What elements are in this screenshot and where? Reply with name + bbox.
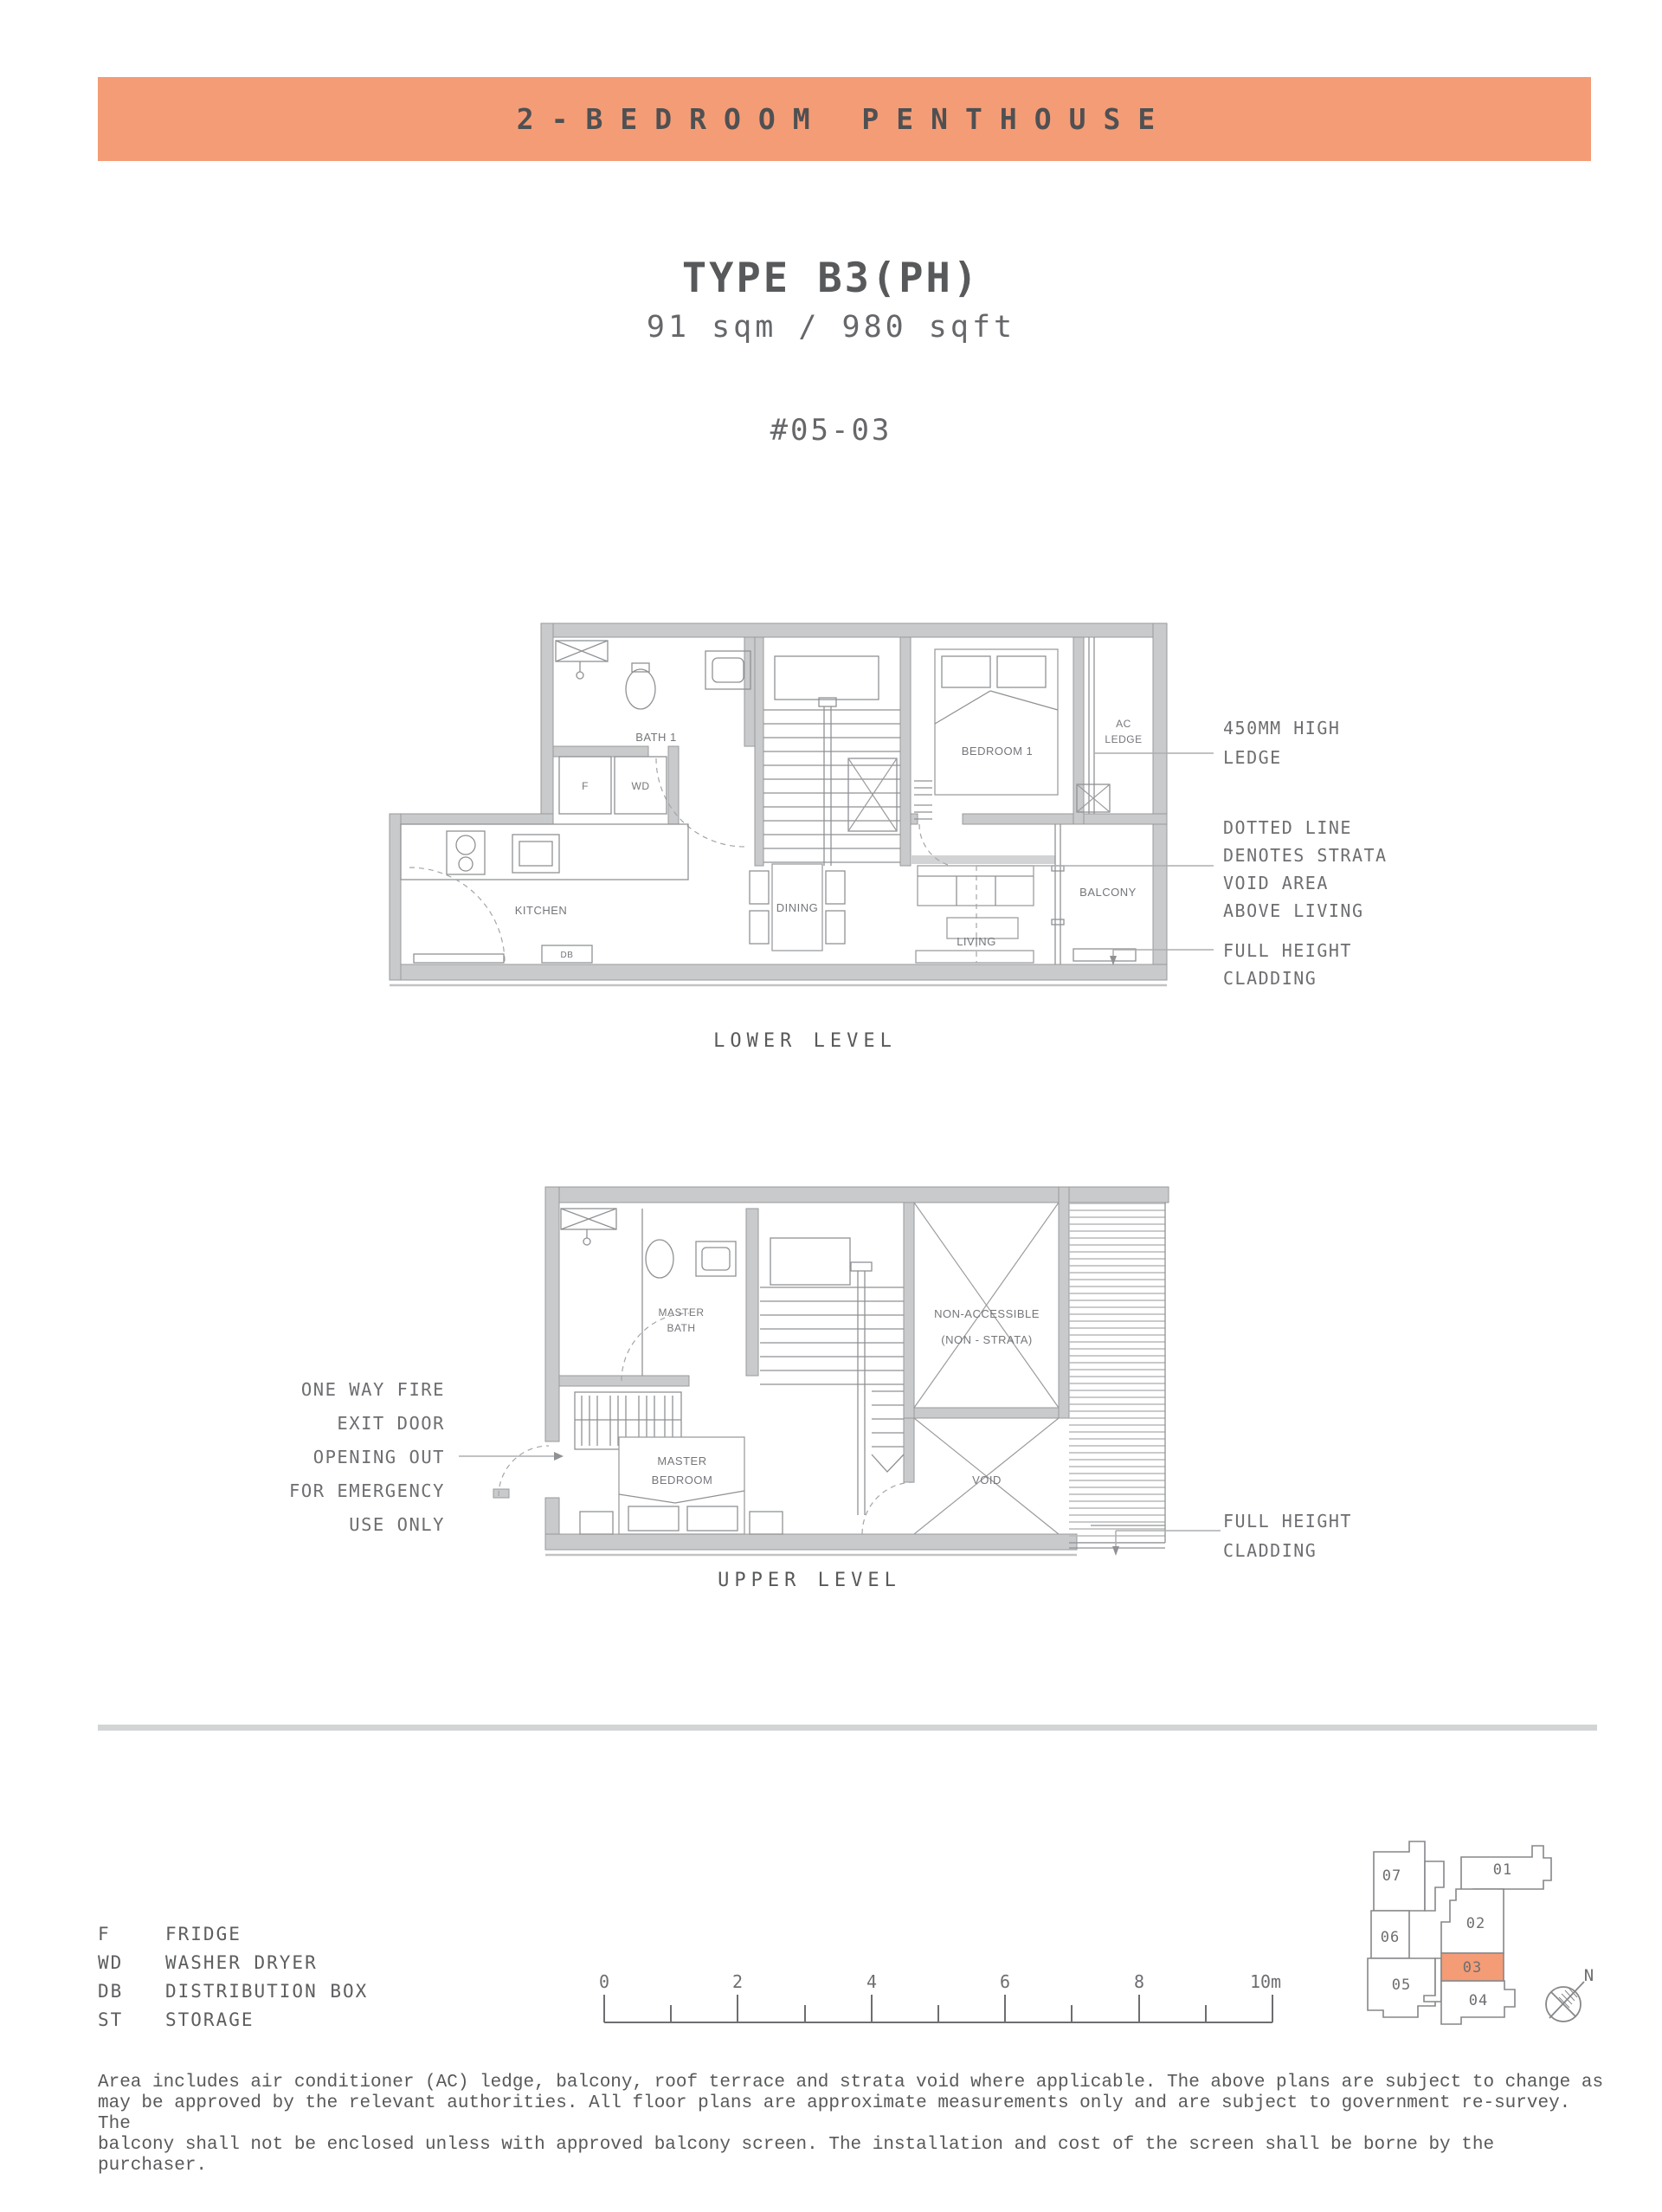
unit-area-subtitle: 91 sqm / 980 sqft (0, 307, 1662, 347)
key-plan-unit-01: 01 (1493, 1861, 1512, 1879)
scale-label-2: 2 (732, 1971, 743, 1992)
lower-living: LIVING (916, 866, 1034, 963)
annotation-cladding-lower-line1: FULL HEIGHT (1223, 937, 1352, 964)
annotation-strata-line2: DENOTES STRATA (1223, 842, 1388, 869)
key-plan-unit-03: 03 (1463, 1959, 1482, 1977)
annotation-fire-exit-line5: USE ONLY (173, 1508, 445, 1542)
legend: FFRIDGE WDWASHER DRYER DBDISTRIBUTION BO… (98, 1920, 368, 2035)
upper-master-bedroom: MASTER BEDROOM (580, 1437, 783, 1534)
floor-plan-page: 2-BEDROOM PENTHOUSE TYPE B3(PH) 91 sqm /… (0, 0, 1662, 2212)
room-label-balcony: BALCONY (1079, 886, 1137, 899)
room-label-void: VOID (972, 1474, 1002, 1486)
section-divider (98, 1725, 1597, 1731)
key-plan-units: 07 01 02 03 06 05 04 (1368, 1841, 1551, 2024)
annotation-cladding-upper-line1: FULL HEIGHT (1223, 1506, 1352, 1536)
annotation-cladding-upper: FULL HEIGHT CLADDING (1223, 1506, 1352, 1565)
room-label-non-accessible-2: (NON - STRATA) (941, 1333, 1032, 1346)
room-label-bath1: BATH 1 (635, 731, 677, 744)
room-label-fridge: F (582, 780, 589, 792)
key-plan-unit-07: 07 (1382, 1867, 1401, 1885)
room-label-dining: DINING (776, 901, 819, 914)
room-label-kitchen: KITCHEN (515, 904, 568, 917)
north-arrow-icon: N (1546, 1966, 1594, 2022)
annotation-strata-line3: VOID AREA (1223, 869, 1388, 897)
lower-level-floor-plan: BATH 1 F WD BEDROOM 1 (381, 606, 1229, 996)
disclaimer-line1: Area includes air conditioner (AC) ledge… (98, 2073, 1604, 2093)
annotation-strata-line1: DOTTED LINE (1223, 814, 1388, 842)
room-label-master-bedroom-1: MASTER (657, 1454, 706, 1467)
lower-bath: BATH 1 (556, 641, 750, 847)
legend-label: STORAGE (165, 2009, 254, 2030)
annotation-fire-exit-line2: EXIT DOOR (173, 1407, 445, 1441)
key-plan-unit-06: 06 (1381, 1929, 1400, 1946)
room-label-master-bath-2: BATH (667, 1322, 695, 1334)
annotation-fire-exit: ONE WAY FIRE EXIT DOOR OPENING OUT FOR E… (173, 1373, 445, 1542)
room-label-washer-dryer: WD (632, 780, 650, 792)
annotation-strata-void: DOTTED LINE DENOTES STRATA VOID AREA ABO… (1223, 814, 1388, 925)
lower-fridge-washer: F WD (559, 757, 667, 814)
room-label-master-bath-1: MASTER (658, 1306, 704, 1319)
legend-label: DISTRIBUTION BOX (165, 1981, 368, 2002)
disclaimer-line3: balcony shall not be enclosed unless wit… (98, 2135, 1604, 2177)
annotation-fire-exit-line4: FOR EMERGENCY (173, 1474, 445, 1508)
key-plan-unit-05: 05 (1392, 1977, 1411, 1994)
legend-item-washer-dryer: WDWASHER DRYER (98, 1949, 368, 1977)
lower-ac-ledge: AC LEDGE (1077, 637, 1143, 814)
disclaimer: Area includes air conditioner (AC) ledge… (98, 2073, 1604, 2177)
annotation-ledge-line1: 450MM HIGH (1223, 713, 1340, 743)
lower-level-caption: LOWER LEVEL (589, 1029, 1021, 1054)
annotation-ledge: 450MM HIGH LEDGE (1223, 713, 1340, 772)
room-label-ac-ledge: LEDGE (1105, 733, 1142, 745)
legend-code: ST (98, 2006, 165, 2035)
annotation-fire-exit-line1: ONE WAY FIRE (173, 1373, 445, 1407)
legend-item-distribution-box: DBDISTRIBUTION BOX (98, 1977, 368, 2006)
page-banner: 2-BEDROOM PENTHOUSE (98, 77, 1591, 161)
room-label-living: LIVING (957, 935, 996, 948)
disclaimer-line2: may be approved by the relevant authorit… (98, 2093, 1604, 2135)
upper-non-accessible: NON-ACCESSIBLE (NON - STRATA) (914, 1203, 1059, 1408)
upper-master-bath: MASTER BATH (561, 1209, 736, 1381)
upper-level-caption: UPPER LEVEL (593, 1569, 1026, 1593)
legend-code: F (98, 1920, 165, 1949)
legend-label: FRIDGE (165, 1924, 242, 1944)
annotation-cladding-lower-line2: CLADDING (1223, 964, 1352, 992)
room-label-db: DB (561, 951, 574, 960)
unit-type-title: TYPE B3(PH) (0, 253, 1662, 305)
scale-label-8: 8 (1134, 1971, 1144, 1992)
legend-code: DB (98, 1977, 165, 2006)
legend-code: WD (98, 1949, 165, 1977)
annotation-cladding-lower: FULL HEIGHT CLADDING (1223, 937, 1352, 992)
scale-label-10m: 10m (1250, 1971, 1281, 1992)
scale-label-6: 6 (1000, 1971, 1010, 1992)
upper-fire-exit-door (493, 1446, 549, 1498)
legend-label: WASHER DRYER (165, 1952, 318, 1973)
annotation-fire-exit-line3: OPENING OUT (173, 1441, 445, 1474)
scale-label-0: 0 (599, 1971, 609, 1992)
north-label: N (1584, 1966, 1594, 1985)
upper-roof-strip (1069, 1203, 1165, 1548)
legend-item-storage: STSTORAGE (98, 2006, 368, 2035)
room-label-non-accessible-1: NON-ACCESSIBLE (934, 1307, 1040, 1320)
lower-bedroom1: BEDROOM 1 (919, 649, 1058, 867)
lower-balcony: BALCONY (1052, 824, 1137, 964)
key-plan: 07 01 02 03 06 05 04 N (1333, 1783, 1619, 2043)
upper-void: VOID (862, 1418, 1059, 1534)
unit-number: #05-03 (0, 410, 1662, 450)
upper-stairs (760, 1238, 904, 1515)
key-plan-core-shape (1425, 1861, 1444, 1911)
scale-label-4: 4 (866, 1971, 877, 1992)
lower-kitchen: DB KITCHEN (401, 824, 688, 963)
key-plan-unit-04: 04 (1469, 1992, 1488, 2009)
annotation-cladding-upper-line2: CLADDING (1223, 1536, 1352, 1565)
annotation-strata-line4: ABOVE LIVING (1223, 897, 1388, 925)
annotation-ledge-line2: LEDGE (1223, 743, 1340, 772)
key-plan-unit-02: 02 (1466, 1915, 1485, 1932)
room-label-ac: AC (1116, 718, 1131, 730)
lower-dining: DINING (750, 864, 845, 951)
scale-bar: 0 2 4 6 8 10m (589, 1962, 1298, 2031)
legend-item-fridge: FFRIDGE (98, 1920, 368, 1949)
room-label-bedroom1: BEDROOM 1 (962, 745, 1034, 758)
room-label-master-bedroom-2: BEDROOM (652, 1474, 713, 1486)
